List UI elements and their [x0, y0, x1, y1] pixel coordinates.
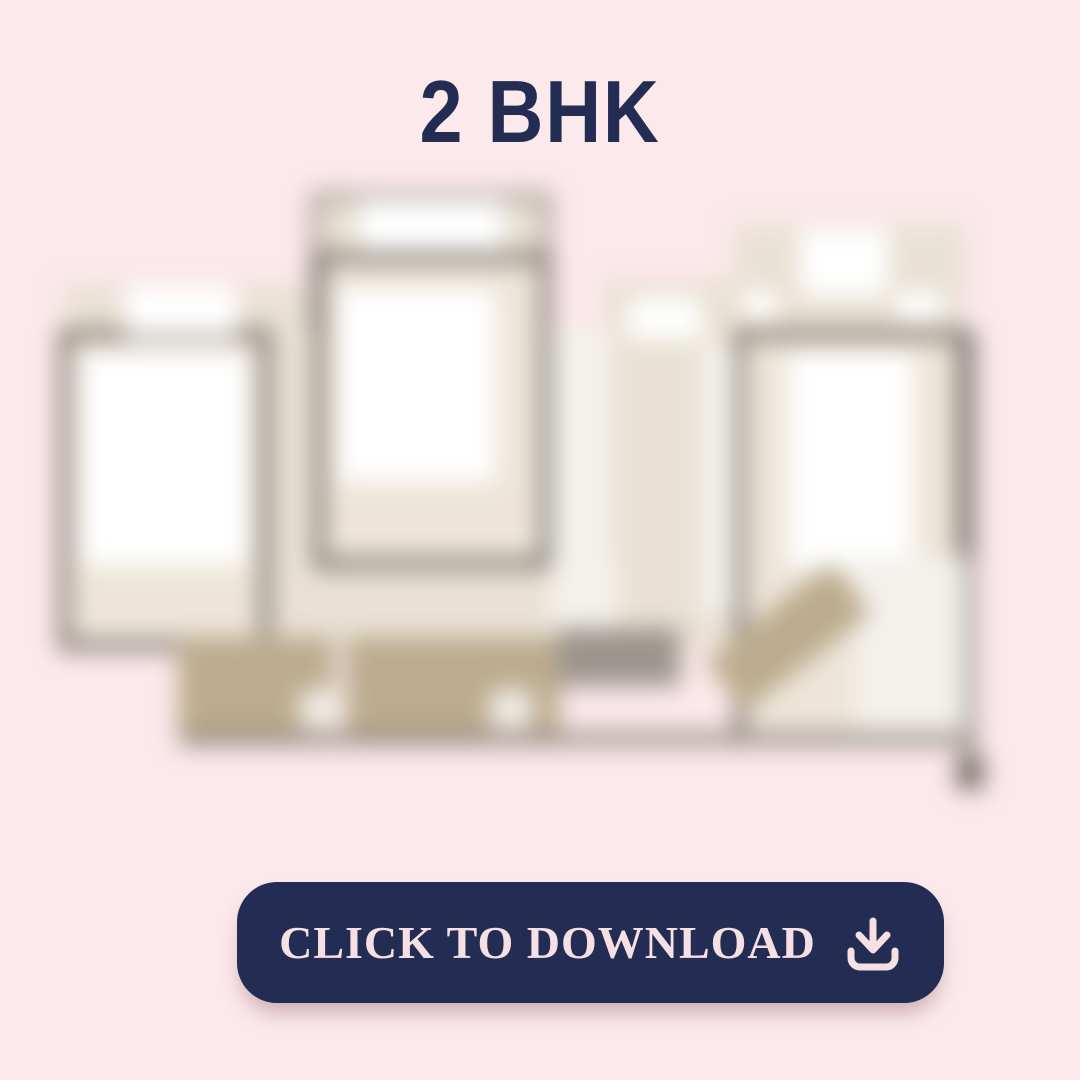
plan-deck-gap-2 [490, 690, 532, 730]
floorplan-image [60, 185, 990, 805]
plan-window-center [628, 298, 702, 340]
plan-window-left [125, 287, 237, 335]
page-title-text: 2 BHK [419, 68, 660, 156]
plan-block-bottom-right [855, 557, 967, 739]
download-button-label: CLICK TO DOWNLOAD [279, 916, 816, 969]
plan-right-wall-end [957, 757, 983, 789]
plan-room-left-interior [82, 353, 247, 565]
page-title: 2 BHK [0, 68, 1080, 156]
plan-stairs [558, 628, 680, 686]
plan-window-right-3 [898, 291, 940, 321]
plan-right-wall [966, 330, 975, 782]
download-icon [844, 913, 902, 973]
page-background: 2 BHK [0, 0, 1080, 1080]
plan-window-mid [360, 199, 502, 251]
plan-deck-gap-1 [300, 690, 342, 730]
plan-room-mid-interior [338, 290, 496, 482]
plan-corridor-right [700, 343, 736, 615]
plan-room-right-interior [788, 353, 914, 568]
download-button[interactable]: CLICK TO DOWNLOAD [237, 882, 944, 1003]
plan-window-right-2 [744, 291, 776, 321]
plan-bottom-wall [180, 733, 968, 745]
plan-window-right-1 [800, 230, 888, 296]
